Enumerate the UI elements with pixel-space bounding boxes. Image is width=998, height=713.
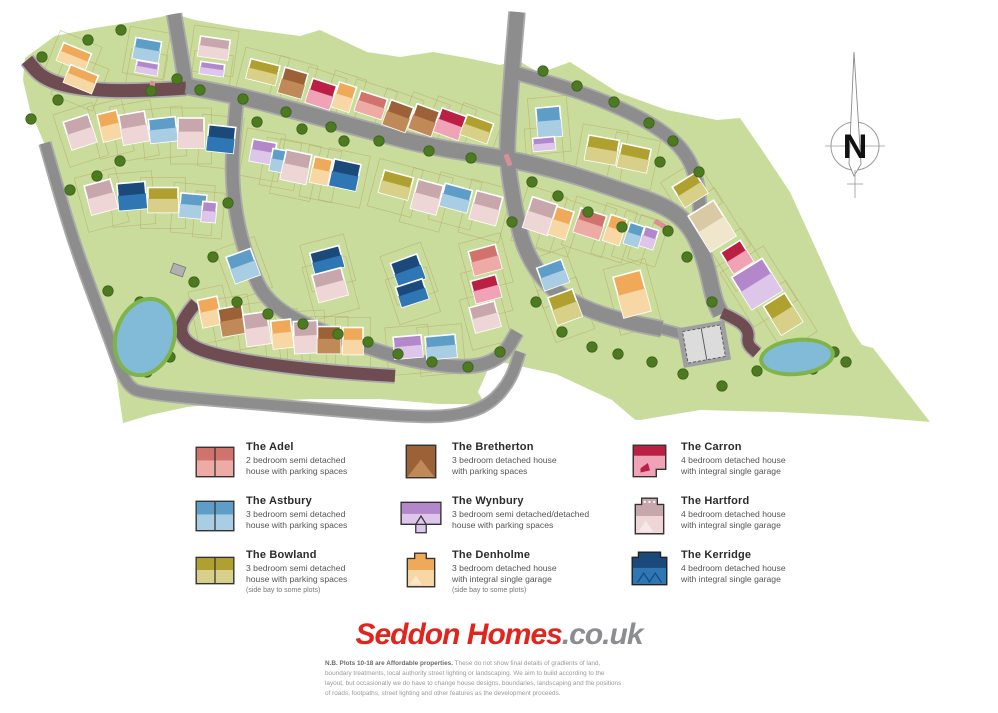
house-bowland	[148, 188, 178, 213]
tree	[297, 124, 307, 134]
house-kerridge	[206, 125, 236, 154]
legend-item-text: The Carron4 bedroom detached housewith i…	[681, 441, 786, 478]
tree	[644, 118, 654, 128]
carron-house-swatch-icon	[628, 442, 672, 482]
tree	[647, 357, 657, 367]
logo-primary-text: Seddon Homes	[355, 618, 561, 651]
house-hartford	[469, 301, 501, 333]
tree	[333, 329, 343, 339]
legend-item-description: 2 bedroom semi detachedhouse with parkin…	[246, 455, 347, 478]
house-kerridge	[117, 181, 147, 210]
tree	[707, 297, 717, 307]
hartford-house-swatch-icon	[628, 496, 672, 536]
tree	[252, 117, 262, 127]
tree	[507, 217, 517, 227]
tree	[617, 222, 627, 232]
house-hartford	[280, 150, 312, 185]
bowland-house-swatch-icon	[193, 550, 237, 590]
legend-item-bretherton: The Bretherton3 bedroom detached housewi…	[399, 441, 624, 482]
tree	[424, 146, 434, 156]
house-astbury	[148, 117, 177, 144]
tree	[557, 327, 567, 337]
house-hartford	[198, 36, 230, 60]
tree	[65, 185, 75, 195]
legend-item-text: The Astbury3 bedroom semi detachedhouse …	[246, 495, 347, 532]
house-astbury	[132, 37, 161, 62]
tree	[374, 136, 384, 146]
legend-item-kerridge: The Kerridge4 bedroom detached housewith…	[628, 549, 820, 594]
tree	[223, 198, 233, 208]
legend-item-note: (side bay to some plots)	[246, 587, 347, 594]
tree	[326, 122, 336, 132]
legend-item-description: 4 bedroom detached housewith integral si…	[681, 455, 786, 478]
tree	[463, 362, 473, 372]
tree	[717, 381, 727, 391]
legend: The Adel2 bedroom semi detachedhouse wit…	[193, 441, 818, 594]
tree	[363, 337, 373, 347]
disclaimer-bold: N.B. Plots 10-18 are Affordable properti…	[325, 660, 453, 667]
site-plan-page: N The Adel2 bedroom semi detachedhouse w…	[0, 0, 998, 713]
tree	[531, 297, 541, 307]
tree	[208, 252, 218, 262]
tree	[195, 85, 205, 95]
legend-item-title: The Wynbury	[452, 495, 589, 507]
legend-item-description: 3 bedroom semi detachedhouse with parkin…	[246, 509, 347, 532]
tree	[238, 94, 248, 104]
tree	[694, 167, 704, 177]
legend-item-description: 4 bedroom detached housewith integral si…	[681, 509, 786, 532]
house-wynbury	[532, 137, 555, 152]
tree	[53, 95, 63, 105]
tree	[26, 114, 36, 124]
legend-item-title: The Bowland	[246, 549, 347, 561]
house-denholme	[271, 319, 294, 349]
tree	[37, 52, 47, 62]
house-hartford	[178, 118, 204, 148]
seddon-homes-logo: Seddon Homes.co.uk	[0, 618, 998, 652]
legend-item-title: The Adel	[246, 441, 347, 453]
legend-item-adel: The Adel2 bedroom semi detachedhouse wit…	[193, 441, 395, 482]
house-bretherton	[218, 305, 246, 337]
legend-item-title: The Denholme	[452, 549, 557, 561]
legend-item-text: The Bowland3 bedroom semi detachedhouse …	[246, 549, 347, 594]
tree	[103, 286, 113, 296]
north-compass-icon: N	[825, 52, 885, 198]
house-astbury	[536, 106, 563, 138]
tree	[587, 342, 597, 352]
logo-suffix-text: .co.uk	[562, 618, 643, 651]
tree	[553, 191, 563, 201]
compass-north-label: N	[843, 128, 868, 166]
tree	[298, 319, 308, 329]
tree	[232, 297, 242, 307]
kerridge-house-swatch-icon	[628, 550, 672, 590]
legend-item-carron: The Carron4 bedroom detached housewith i…	[628, 441, 820, 482]
legend-item-title: The Hartford	[681, 495, 786, 507]
tree	[83, 35, 93, 45]
legend-item-title: The Kerridge	[681, 549, 786, 561]
tree	[92, 171, 102, 181]
legend-item-denholme: The Denholme3 bedroom detached housewith…	[399, 549, 624, 594]
tree	[663, 226, 673, 236]
tree	[668, 136, 678, 146]
legend-item-astbury: The Astbury3 bedroom semi detachedhouse …	[193, 495, 395, 536]
disclaimer-text: N.B. Plots 10-18 are Affordable properti…	[325, 659, 625, 699]
tree	[146, 86, 156, 96]
legend-item-hartford: The Hartford4 bedroom detached housewith…	[628, 495, 820, 536]
legend-item-text: The Kerridge4 bedroom detached housewith…	[681, 549, 786, 586]
house-bowland	[617, 143, 651, 173]
bretherton-house-swatch-icon	[399, 442, 443, 482]
tree	[172, 74, 182, 84]
legend-item-description: 4 bedroom detached housewith integral si…	[681, 563, 786, 586]
legend-item-note: (side bay to some plots)	[452, 587, 557, 594]
tree	[609, 97, 619, 107]
legend-item-title: The Astbury	[246, 495, 347, 507]
denholme-house-swatch-icon	[399, 550, 443, 590]
legend-item-text: The Wynbury3 bedroom semi detached/detac…	[452, 495, 589, 532]
legend-item-text: The Hartford4 bedroom detached housewith…	[681, 495, 786, 532]
tree	[263, 309, 273, 319]
tree	[583, 207, 593, 217]
tree	[655, 157, 665, 167]
legend-item-description: 3 bedroom semi detachedhouse with parkin…	[246, 563, 347, 586]
house-bowland	[585, 135, 620, 165]
tree	[682, 252, 692, 262]
tree	[189, 277, 199, 287]
adel-house-swatch-icon	[193, 442, 237, 482]
tree	[393, 349, 403, 359]
house-denholme	[343, 328, 363, 355]
tree	[466, 153, 476, 163]
house-wynbury	[201, 201, 217, 222]
tree	[115, 156, 125, 166]
house-wynbury	[199, 61, 224, 76]
tree	[752, 366, 762, 376]
legend-item-description: 3 bedroom detached housewith integral si…	[452, 563, 557, 586]
tree	[538, 66, 548, 76]
legend-item-text: The Bretherton3 bedroom detached housewi…	[452, 441, 557, 478]
legend-item-bowland: The Bowland3 bedroom semi detachedhouse …	[193, 549, 395, 594]
legend-item-description: 3 bedroom detached housewith parking spa…	[452, 455, 557, 478]
legend-item-text: The Denholme3 bedroom detached housewith…	[452, 549, 557, 594]
site-plan-map: N	[0, 0, 998, 440]
wynbury-house-swatch-icon	[399, 496, 443, 536]
tree	[527, 177, 537, 187]
legend-item-wynbury: The Wynbury3 bedroom semi detached/detac…	[399, 495, 624, 536]
legend-item-text: The Adel2 bedroom semi detachedhouse wit…	[246, 441, 347, 478]
legend-item-title: The Bretherton	[452, 441, 557, 453]
garage-block	[677, 320, 731, 368]
tree	[613, 349, 623, 359]
tree	[495, 347, 505, 357]
house-astbury	[425, 334, 457, 360]
legend-item-title: The Carron	[681, 441, 786, 453]
legend-item-description: 3 bedroom semi detached/detachedhouse wi…	[452, 509, 589, 532]
tree	[339, 136, 349, 146]
tree	[572, 81, 582, 91]
house-kerridge	[329, 159, 361, 191]
tree	[678, 369, 688, 379]
tree	[116, 25, 126, 35]
astbury-house-swatch-icon	[193, 496, 237, 536]
tree	[427, 357, 437, 367]
tree	[281, 107, 291, 117]
house-hartford	[119, 111, 150, 145]
tree	[841, 357, 851, 367]
